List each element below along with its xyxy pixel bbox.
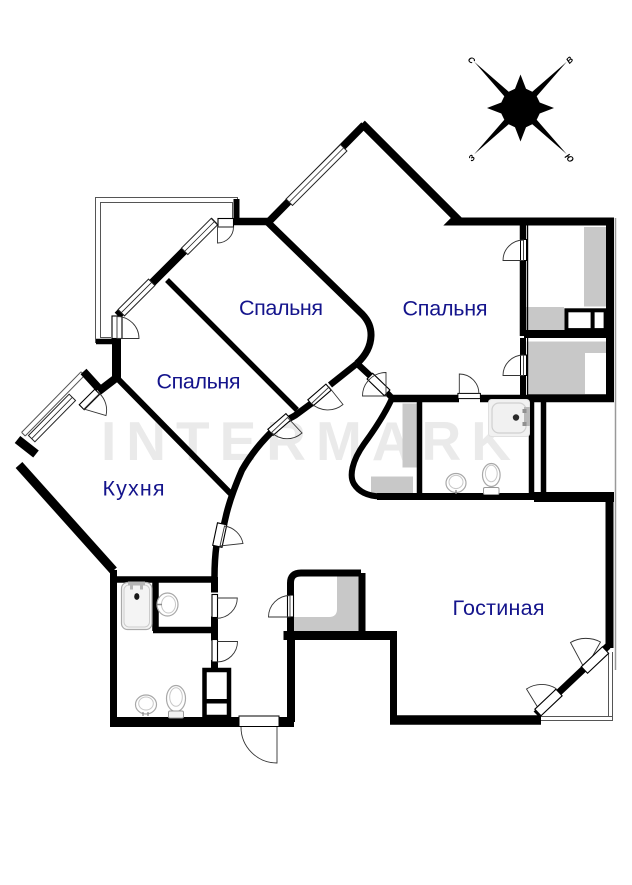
svg-text:Спальня: Спальня — [157, 370, 241, 394]
svg-text:Спальня: Спальня — [403, 297, 488, 321]
svg-text:INTERMARK: INTERMARK — [101, 410, 521, 472]
svg-text:Спальня: Спальня — [239, 296, 323, 320]
svg-text:Гостиная: Гостиная — [453, 596, 545, 620]
svg-text:Кухня: Кухня — [103, 477, 165, 501]
